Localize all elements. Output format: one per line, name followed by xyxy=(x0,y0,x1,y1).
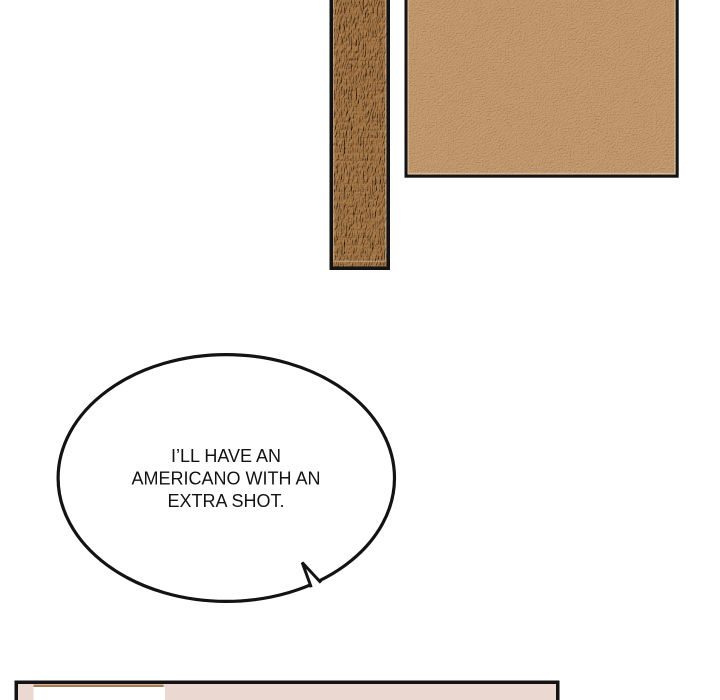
svg-text:AMERICANO WITH AN: AMERICANO WITH AN xyxy=(131,469,320,489)
svg-text:EXTRA SHOT.: EXTRA SHOT. xyxy=(167,491,284,511)
svg-text:I’LL HAVE AN: I’LL HAVE AN xyxy=(171,446,281,466)
